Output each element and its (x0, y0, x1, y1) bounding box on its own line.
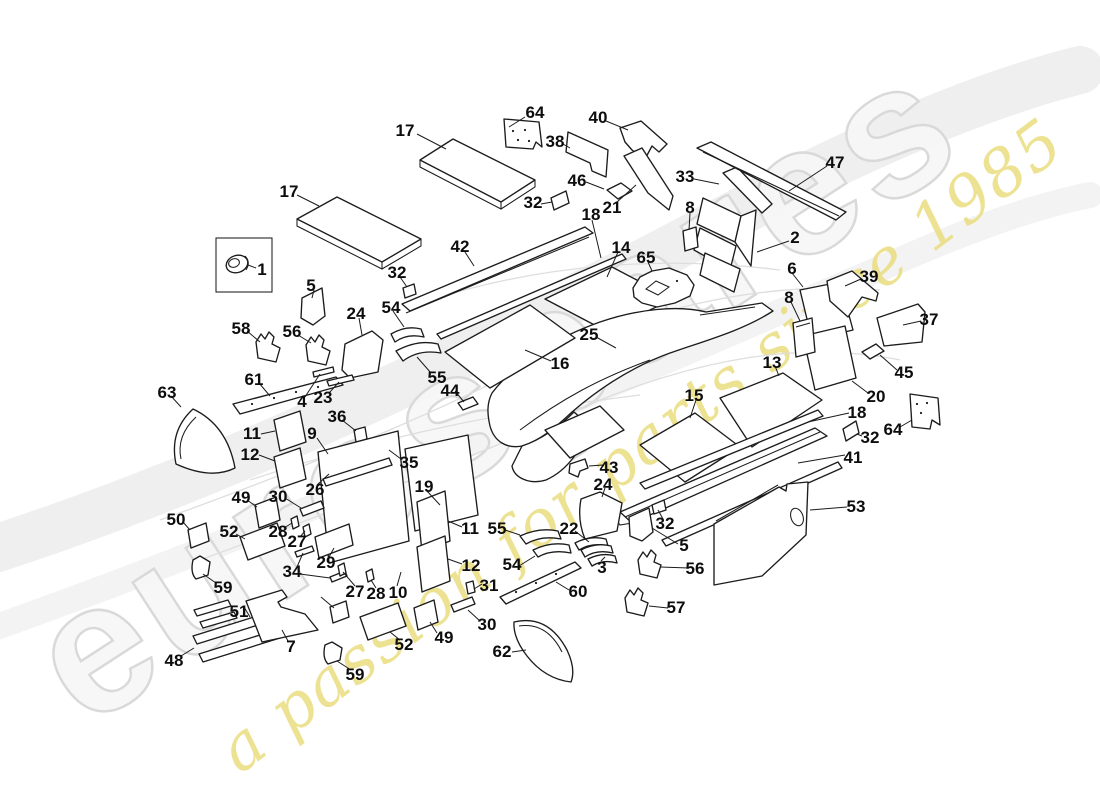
part-label-14: 14 (612, 238, 631, 257)
part-label-3: 3 (597, 558, 606, 577)
part-label-32: 32 (524, 193, 543, 212)
part-label-15: 15 (685, 386, 704, 405)
part-label-25: 25 (580, 325, 599, 344)
part-label-16: 16 (551, 354, 570, 373)
part-label-61: 61 (245, 370, 264, 389)
part-label-58: 58 (232, 319, 251, 338)
part-63-wheel-arch (174, 409, 235, 473)
part-64-top (504, 119, 542, 149)
part-label-11: 11 (461, 519, 479, 538)
part-label-8: 8 (685, 198, 694, 217)
part-label-4: 4 (297, 392, 307, 411)
part-24-left (342, 331, 383, 378)
part-53-door-panel (714, 482, 808, 585)
part-label-11: 11 (243, 424, 261, 443)
part-label-32: 32 (388, 263, 407, 282)
part-label-20: 20 (867, 387, 886, 406)
part-label-8: 8 (784, 288, 793, 307)
part-57-clip (625, 588, 648, 616)
part-label-10: 10 (389, 583, 408, 602)
part-label-65: 65 (637, 248, 656, 267)
part-label-42: 42 (451, 237, 470, 256)
part-label-49: 49 (232, 488, 251, 507)
part-label-17: 17 (396, 121, 415, 140)
part-label-63: 63 (158, 383, 177, 402)
part-label-12: 12 (241, 445, 260, 464)
part-label-54: 54 (382, 298, 401, 317)
part-label-41: 41 (844, 448, 863, 467)
part-label-28: 28 (269, 522, 288, 541)
part-label-24: 24 (347, 304, 366, 323)
part-label-5: 5 (679, 536, 688, 555)
part-label-32: 32 (656, 514, 675, 533)
part-label-23: 23 (314, 388, 333, 407)
part-label-26: 26 (306, 480, 325, 499)
part-label-44: 44 (441, 381, 460, 400)
part-label-52: 52 (395, 635, 414, 654)
part-label-33: 33 (676, 167, 695, 186)
part-label-13: 13 (763, 353, 782, 372)
exploded-parts-diagram: eurospares a passion for parts since 198… (0, 0, 1100, 800)
part-label-54: 54 (503, 555, 522, 574)
part-label-57: 57 (667, 598, 686, 617)
part-label-19: 19 (415, 477, 434, 496)
part-label-27: 27 (288, 532, 307, 551)
part-label-56: 56 (686, 559, 705, 578)
part-label-46: 46 (568, 171, 587, 190)
part-label-59: 59 (346, 665, 365, 684)
part-28-mid (366, 569, 374, 582)
part-31-clip (466, 581, 475, 594)
part-17-top-panel (420, 139, 535, 209)
part-label-47: 47 (826, 153, 845, 172)
part-label-28: 28 (367, 584, 386, 603)
part-label-6: 6 (787, 259, 796, 278)
part-label-27: 27 (346, 582, 365, 601)
part-label-5: 5 (306, 276, 315, 295)
part-label-34: 34 (283, 562, 302, 581)
part-label-55: 55 (488, 519, 507, 538)
part-label-1: 1 (257, 260, 266, 279)
part-58-clip (256, 332, 280, 362)
part-label-40: 40 (589, 108, 608, 127)
part-label-17: 17 (280, 182, 299, 201)
part-label-45: 45 (895, 363, 914, 382)
part-12-right (417, 536, 450, 592)
part-label-18: 18 (582, 205, 601, 224)
part-28-left (291, 516, 299, 529)
part-label-64: 64 (884, 420, 903, 439)
part-label-64: 64 (526, 103, 545, 122)
part-label-9: 9 (307, 424, 316, 443)
part-64-right (910, 394, 940, 429)
part-label-49: 49 (435, 628, 454, 647)
part-label-38: 38 (546, 132, 565, 151)
part-label-24: 24 (594, 475, 613, 494)
part-label-53: 53 (847, 497, 866, 516)
part-label-60: 60 (569, 582, 588, 601)
part-label-30: 30 (478, 615, 497, 634)
part-56-right-clip (638, 550, 661, 578)
part-label-56: 56 (283, 322, 302, 341)
part-32-b (403, 284, 416, 298)
part-62-wheel-arch (514, 621, 573, 682)
part-label-48: 48 (165, 651, 184, 670)
part-label-7: 7 (286, 637, 295, 656)
part-label-62: 62 (493, 642, 512, 661)
part-label-37: 37 (920, 310, 939, 329)
part-label-52: 52 (220, 522, 239, 541)
part-label-29: 29 (317, 553, 336, 572)
part-label-12: 12 (462, 556, 481, 575)
part-label-51: 51 (230, 602, 249, 621)
part-label-39: 39 (860, 267, 879, 286)
part-8-right-wedge (793, 318, 815, 357)
parts-diagram-page: eurospares a passion for parts since 198… (0, 0, 1100, 800)
part-label-22: 22 (560, 519, 579, 538)
part-32-a (551, 191, 569, 210)
part-label-59: 59 (214, 578, 233, 597)
part-label-30: 30 (269, 487, 288, 506)
part-label-36: 36 (328, 407, 347, 426)
part-17-left-panel (297, 197, 421, 269)
part-56-left-clip (306, 335, 330, 365)
part-label-32: 32 (861, 428, 880, 447)
part-label-50: 50 (167, 510, 186, 529)
part-label-2: 2 (790, 228, 799, 247)
part-8-left-wedge (683, 227, 698, 251)
part-label-21: 21 (603, 198, 622, 217)
grommet-icon (224, 253, 250, 276)
part-label-18: 18 (848, 403, 867, 422)
part-37 (877, 304, 925, 346)
part-label-31: 31 (480, 576, 499, 595)
part-label-35: 35 (400, 453, 419, 472)
part-32-right (843, 421, 859, 441)
